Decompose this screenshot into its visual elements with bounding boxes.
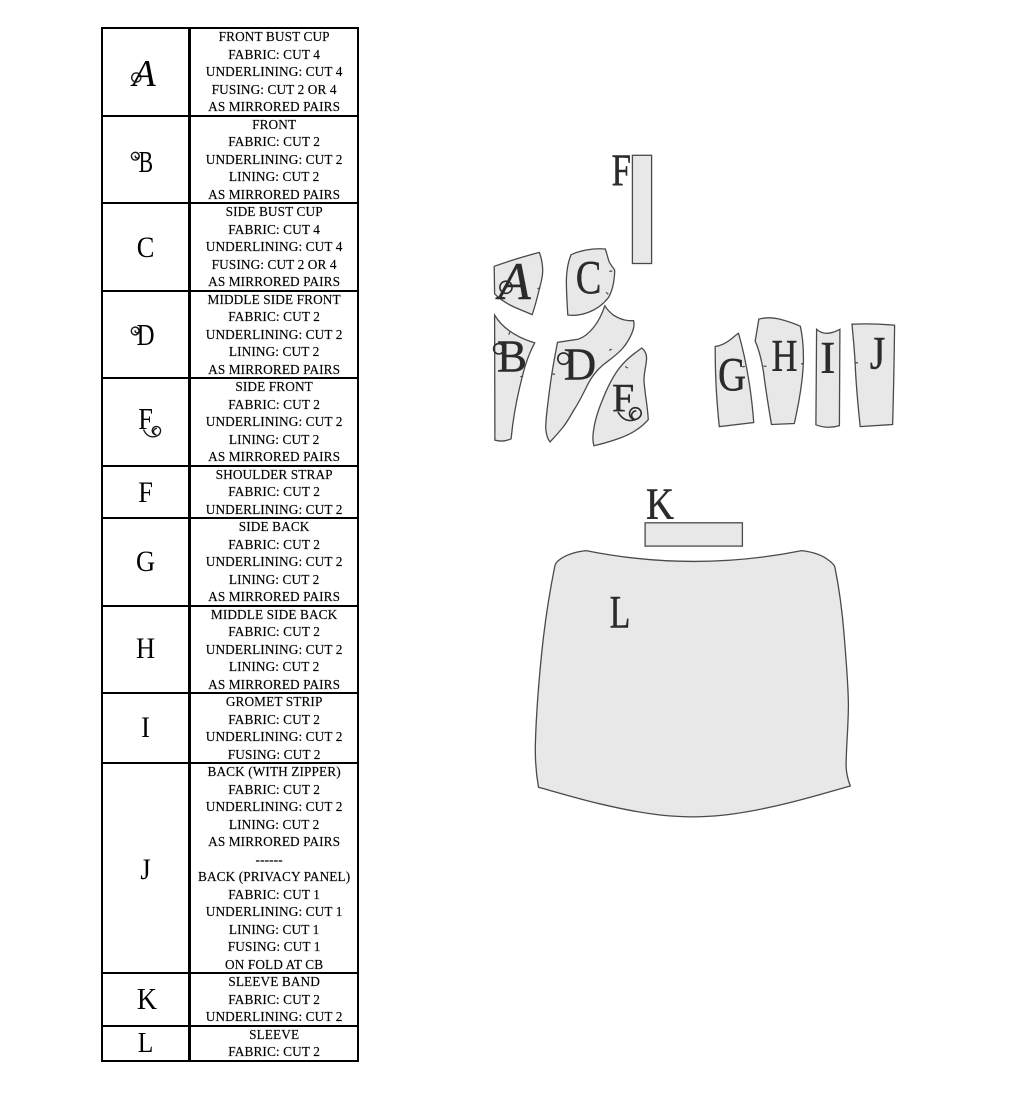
svg-text:K: K bbox=[646, 479, 674, 528]
svg-text:A: A bbox=[495, 253, 531, 311]
svg-text:B: B bbox=[497, 331, 527, 381]
svg-text:C: C bbox=[576, 252, 602, 305]
svg-text:H: H bbox=[772, 331, 798, 381]
svg-text:D: D bbox=[564, 340, 597, 390]
svg-text:J: J bbox=[870, 328, 886, 380]
svg-text:L: L bbox=[610, 586, 631, 638]
svg-text:G: G bbox=[718, 349, 746, 402]
svg-text:F: F bbox=[612, 376, 634, 421]
svg-text:I: I bbox=[820, 333, 835, 383]
svg-text:F: F bbox=[612, 145, 632, 195]
